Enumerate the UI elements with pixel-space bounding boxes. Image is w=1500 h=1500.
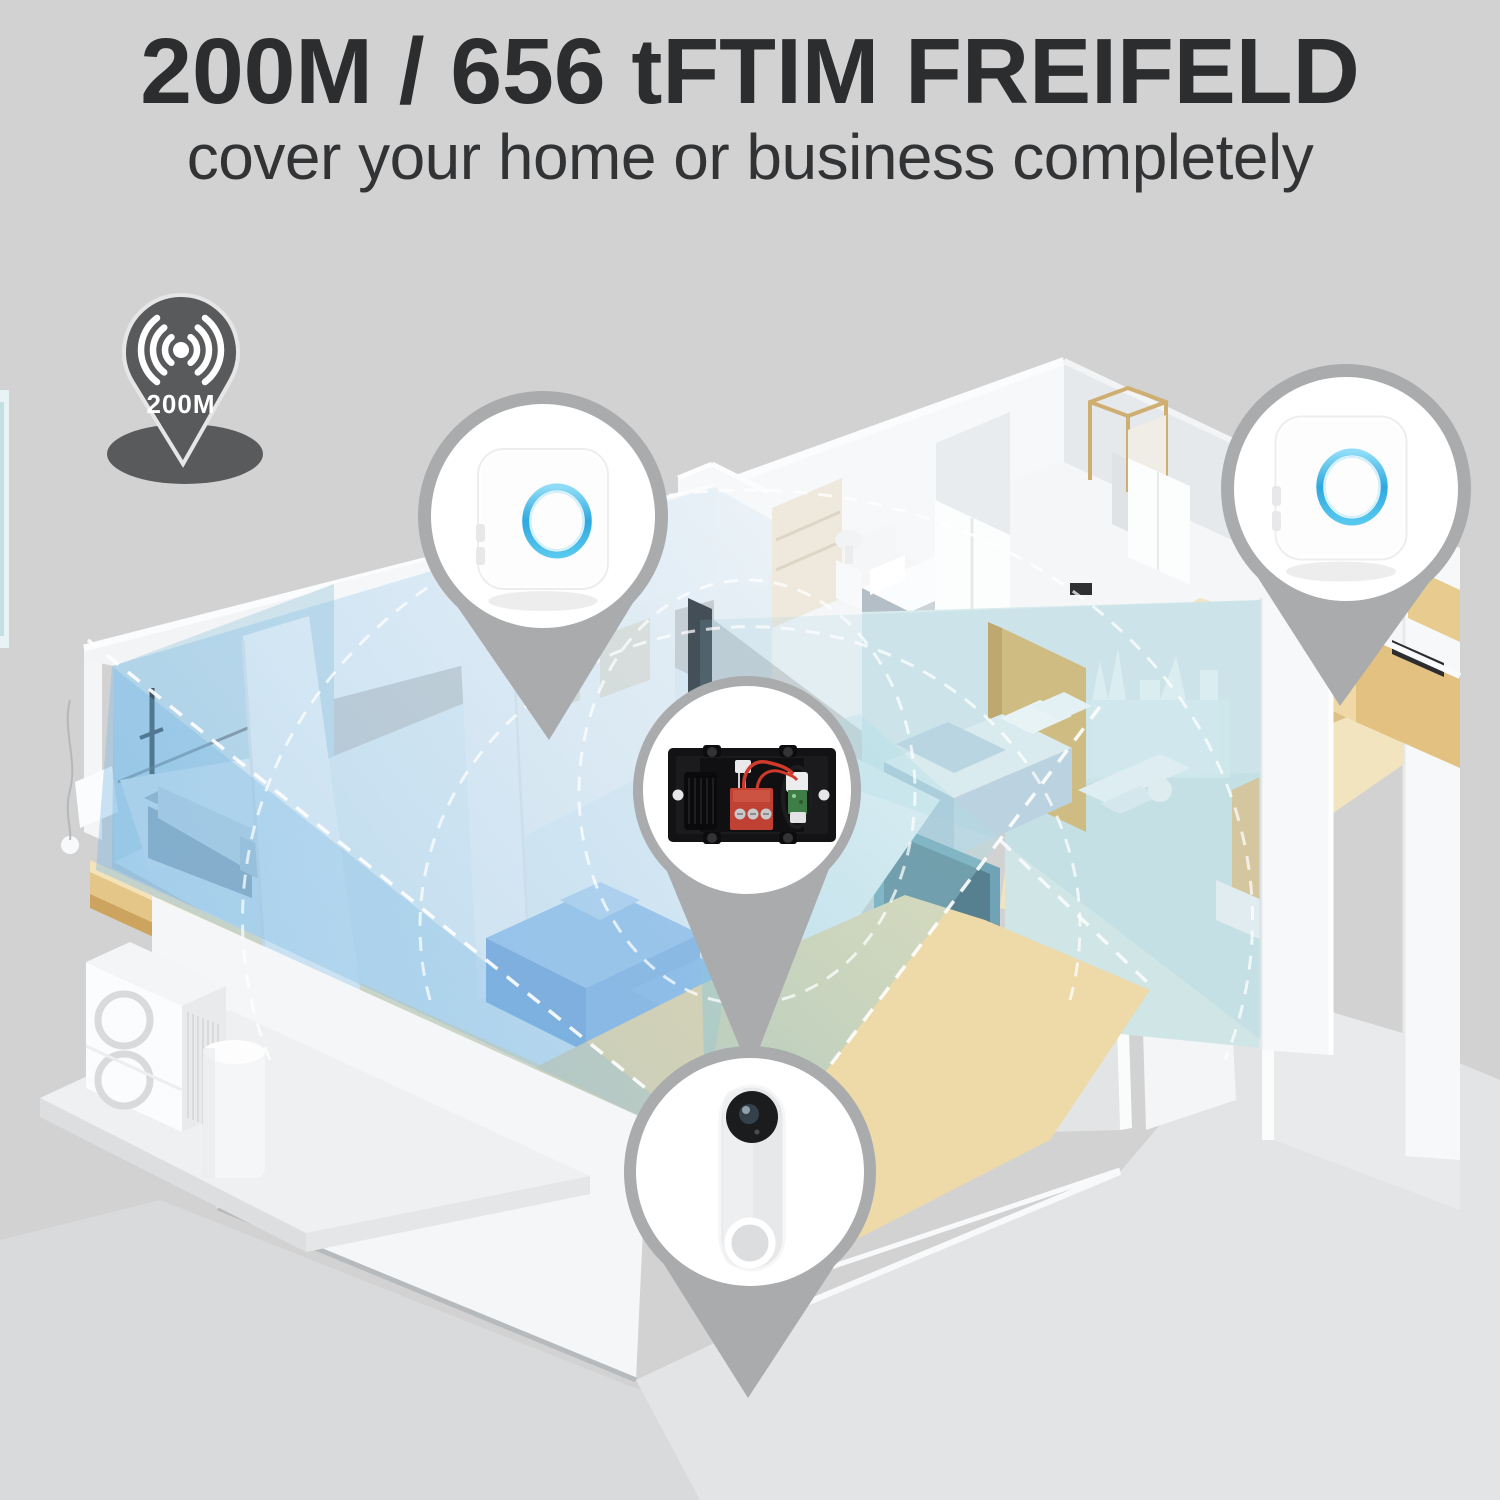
svg-text:200M: 200M bbox=[146, 389, 215, 419]
